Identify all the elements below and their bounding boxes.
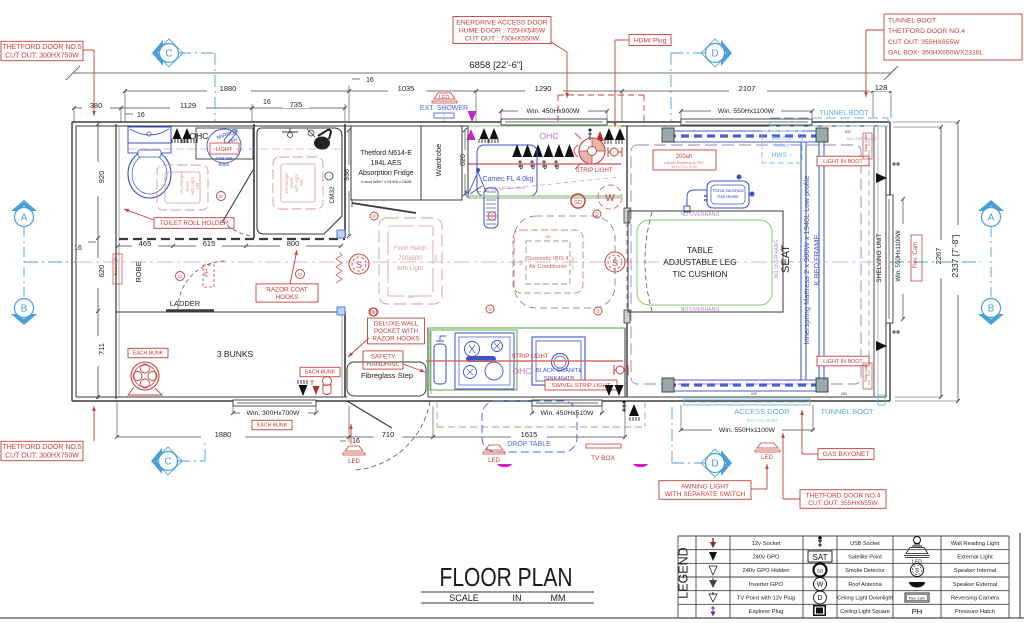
svg-text:THETFORD DOOR NO.5: THETFORD DOOR NO.5: [2, 44, 81, 51]
svg-text:CUT OUT: 300HX750W: CUT OUT: 300HX750W: [5, 53, 79, 60]
svg-text:Strip Light: Strip Light: [863, 363, 868, 382]
svg-text:655: 655: [751, 392, 757, 396]
svg-text:Explorer Plug: Explorer Plug: [749, 609, 784, 615]
svg-text:D: D: [372, 214, 375, 219]
svg-text:HWS ~: HWS ~: [772, 152, 793, 159]
svg-text:Win. 300Hx700W: Win. 300Hx700W: [247, 410, 300, 417]
svg-text:DROP TABLE: DROP TABLE: [507, 441, 551, 448]
svg-text:Wardrobe: Wardrobe: [434, 144, 443, 177]
svg-text:Rev. Cam: Rev. Cam: [913, 242, 919, 268]
svg-text:CUT OUT: 355HX655W: CUT OUT: 355HX655W: [808, 500, 878, 507]
svg-text:LIGHT: LIGHT: [216, 147, 233, 153]
svg-text:Rev. Cam: Rev. Cam: [909, 597, 925, 601]
svg-text:3 BUNKS: 3 BUNKS: [217, 349, 254, 359]
svg-text:Reversing Camera: Reversing Camera: [951, 596, 1000, 602]
svg-text:349: 349: [434, 255, 438, 261]
svg-text:CUT OUT : 730HX550W: CUT OUT : 730HX550W: [465, 35, 540, 42]
svg-text:Absorption Fridge: Absorption Fridge: [358, 170, 413, 177]
svg-text:W: W: [605, 193, 615, 204]
svg-text:Ceiling Light Downlight: Ceiling Light Downlight: [837, 596, 893, 602]
svg-text:Gas Heater: Gas Heater: [717, 194, 739, 199]
svg-text:LIGHT IN BOOT: LIGHT IN BOOT: [823, 159, 863, 165]
svg-text:AWNING LIGHT: AWNING LIGHT: [681, 483, 729, 490]
svg-text:Wall Reading Light: Wall Reading Light: [951, 541, 1000, 547]
svg-text:GAS BAYONET: GAS BAYONET: [823, 451, 870, 458]
svg-text:D: D: [178, 274, 182, 280]
svg-text:THETFORD DOOR NO.4: THETFORD DOOR NO.4: [806, 492, 881, 499]
svg-text:D: D: [488, 307, 491, 312]
svg-text:NCE 329: NCE 329: [216, 156, 234, 161]
svg-text:CM32: CM32: [329, 186, 336, 204]
svg-text:D: D: [219, 194, 223, 200]
svg-text:Enerflow: Enerflow: [772, 136, 792, 142]
svg-text:NO OVERHANG: NO OVERHANG: [847, 136, 877, 141]
svg-text:S: S: [612, 258, 618, 268]
svg-text:Win. 450Hx900W: Win. 450Hx900W: [527, 108, 580, 115]
svg-text:Innerspring Mattress 2 x 980W: Innerspring Mattress 2 x 980W x 1940L Lo…: [802, 176, 811, 345]
svg-text:S: S: [915, 569, 919, 575]
svg-text:200ah: 200ah: [676, 154, 693, 160]
svg-text:LADDER: LADDER: [170, 299, 201, 308]
svg-text:360: 360: [545, 235, 551, 239]
svg-text:184L AES: 184L AES: [371, 160, 402, 167]
svg-text:Win. 550Hx1100W: Win. 550Hx1100W: [718, 108, 775, 115]
svg-text:A: A: [988, 213, 995, 224]
svg-text:SAT: SAT: [813, 553, 828, 562]
svg-text:OHC: OHC: [513, 366, 532, 376]
svg-text:W: W: [817, 582, 824, 589]
svg-text:NO OVERHANG: NO OVERHANG: [681, 307, 720, 313]
svg-text:W600 x H700 x D420: W600 x H700 x D420: [487, 185, 526, 190]
svg-text:RAZOR HOOKS: RAZOR HOOKS: [372, 336, 419, 343]
svg-text:D: D: [596, 309, 599, 314]
svg-text:TABLE: TABLE: [687, 245, 714, 255]
svg-text:External Light: External Light: [957, 555, 993, 561]
svg-text:Speaker Internal: Speaker Internal: [954, 568, 997, 574]
svg-text:1290: 1290: [535, 84, 552, 93]
svg-text:Thetford N614-E: Thetford N614-E: [360, 150, 412, 157]
svg-text:465: 465: [139, 239, 152, 248]
svg-text:Speaker External: Speaker External: [953, 582, 997, 588]
svg-text:SD: SD: [817, 569, 824, 574]
svg-text:16: 16: [366, 77, 374, 84]
svg-text:CUT OUT: 355HX655W: CUT OUT: 355HX655W: [888, 39, 960, 46]
svg-text:TUNNEL BOOT: TUNNEL BOOT: [888, 18, 936, 25]
svg-text:240v GPO: 240v GPO: [752, 555, 780, 561]
svg-text:735: 735: [290, 100, 303, 109]
svg-text:Instant: Instant: [774, 143, 790, 149]
svg-text:D: D: [817, 595, 822, 602]
svg-text:SEAT: SEAT: [780, 245, 792, 273]
svg-text:329: 329: [195, 182, 200, 190]
svg-text:SD: SD: [574, 200, 582, 206]
svg-text:TUNNEL BOOT: TUNNEL BOOT: [820, 407, 873, 416]
svg-text:128: 128: [875, 83, 888, 92]
svg-text:S: S: [356, 260, 362, 270]
svg-text:800: 800: [287, 239, 300, 248]
svg-text:SHELVING UNIT: SHELVING UNIT: [876, 233, 883, 282]
svg-text:STRIP LIGHT: STRIP LIGHT: [576, 168, 613, 174]
svg-text:HDMI Plug: HDMI Plug: [634, 37, 667, 44]
svg-text:1035: 1035: [398, 84, 415, 93]
svg-text:Cutout W607 x H1415 x D628: Cutout W607 x H1415 x D628: [361, 180, 411, 184]
svg-text:D: D: [298, 272, 302, 278]
svg-text:920: 920: [97, 171, 106, 184]
svg-text:TUNNEL BOOT: TUNNEL BOOT: [819, 110, 869, 117]
svg-text:240v GPO Hidden: 240v GPO Hidden: [742, 568, 789, 574]
svg-text:710: 710: [382, 430, 395, 439]
svg-text:ROBE: ROBE: [134, 261, 143, 282]
svg-text:16: 16: [137, 112, 145, 119]
svg-text:K BED FRAME: K BED FRAME: [812, 235, 821, 286]
svg-text:329: 329: [299, 179, 304, 187]
svg-text:HANDRAIL: HANDRAIL: [367, 361, 400, 368]
svg-text:LIGHT IN BOOT: LIGHT IN BOOT: [823, 359, 863, 365]
svg-text:BLACK GRANITE: BLACK GRANITE: [536, 368, 583, 374]
svg-text:C: C: [164, 457, 171, 468]
svg-text:EACH BUNK: EACH BUNK: [305, 370, 336, 376]
svg-text:Fibreglass Step: Fibreglass Step: [361, 371, 413, 380]
svg-text:SCALE: SCALE: [449, 593, 479, 603]
svg-text:1880: 1880: [215, 430, 232, 439]
svg-text:16: 16: [74, 245, 82, 252]
svg-text:LED: LED: [488, 458, 500, 464]
svg-text:B: B: [21, 304, 28, 315]
svg-text:D: D: [371, 310, 374, 315]
svg-text:650: 650: [845, 130, 851, 134]
svg-text:D: D: [711, 49, 718, 60]
svg-text:FLOOR PLAN: FLOOR PLAN: [440, 562, 573, 592]
svg-text:16: 16: [352, 438, 360, 445]
svg-text:IN: IN: [513, 593, 522, 603]
svg-text:OHC: OHC: [190, 131, 209, 141]
svg-text:TIC CUSHION: TIC CUSHION: [672, 269, 727, 279]
svg-text:OHC: OHC: [540, 131, 559, 141]
svg-text:Win. 550Hx1100W: Win. 550Hx1100W: [719, 427, 776, 434]
svg-text:620: 620: [460, 154, 467, 166]
svg-text:C: C: [165, 49, 172, 60]
svg-text:1880: 1880: [220, 84, 237, 93]
svg-text:Pressure Hatch: Pressure Hatch: [955, 609, 995, 615]
svg-text:Domestic IBIS 4: Domestic IBIS 4: [527, 256, 569, 262]
svg-text:Win. 450Hx510W: Win. 450Hx510W: [541, 410, 594, 417]
svg-text:CUT OUT: 300HX750W: CUT OUT: 300HX750W: [5, 452, 79, 459]
svg-text:D: D: [711, 459, 718, 470]
svg-text:Smoke Detector: Smoke Detector: [845, 568, 885, 574]
svg-text:WITH SEPARATE SWITCH: WITH SEPARATE SWITCH: [665, 491, 746, 498]
svg-text:LED: LED: [439, 95, 450, 101]
svg-text:GAL BOX: 350HX650WX2316L: GAL BOX: 350HX650WX2316L: [888, 50, 984, 57]
svg-text:6858 [22’-6”]: 6858 [22’-6”]: [469, 60, 522, 71]
svg-text:2107: 2107: [739, 84, 756, 93]
svg-text:RAZOR COAT: RAZOR COAT: [266, 286, 308, 293]
svg-text:615: 615: [203, 239, 216, 248]
svg-text:HUME DOOR : 725HX545W: HUME DOOR : 725HX545W: [459, 27, 546, 34]
svg-text:Air Conditioner: Air Conditioner: [529, 264, 567, 270]
svg-text:380: 380: [90, 101, 103, 110]
svg-text:EACH BUNK: EACH BUNK: [257, 423, 288, 429]
svg-text:360: 360: [519, 260, 523, 266]
svg-text:SWIVEL STRIP LIGHT: SWIVEL STRIP LIGHT: [552, 383, 611, 389]
svg-text:12v Ranger: 12v Ranger: [179, 171, 184, 194]
svg-text:PH: PH: [204, 269, 210, 277]
svg-text:SAFETY: SAFETY: [371, 353, 397, 360]
svg-text:TV BOX: TV BOX: [591, 455, 616, 462]
svg-text:(NO GAL BOX): (NO GAL BOX): [747, 418, 778, 423]
svg-text:MM: MM: [551, 593, 566, 603]
svg-text:HOOKS: HOOKS: [275, 294, 298, 301]
svg-text:PH: PH: [912, 607, 922, 616]
svg-text:with Light: with Light: [396, 265, 423, 272]
svg-text:2337 [7’-8”]: 2337 [7’-8”]: [950, 235, 960, 278]
svg-text:700x500: 700x500: [398, 255, 422, 262]
svg-text:STRIP LIGHT: STRIP LIGHT: [512, 354, 549, 360]
svg-text:EACH BUNK: EACH BUNK: [133, 351, 164, 357]
svg-text:620: 620: [97, 265, 106, 278]
svg-text:LH 230: LH 230: [571, 257, 575, 269]
svg-text:ENERDRIVE ACCESS DOOR: ENERDRIVE ACCESS DOOR: [456, 19, 547, 26]
svg-text:Truma VarioHeat: Truma VarioHeat: [712, 188, 744, 193]
svg-text:16: 16: [263, 99, 271, 106]
svg-text:Roof Antenna: Roof Antenna: [848, 582, 882, 588]
svg-text:Inverter GPO: Inverter GPO: [749, 582, 784, 588]
svg-text:POCKET WITH: POCKET WITH: [374, 328, 419, 335]
svg-text:12v Socket: 12v Socket: [752, 541, 781, 547]
svg-text:LEGEND: LEGEND: [677, 547, 691, 598]
svg-text:590 x 770 x D790: 590 x 770 x D790: [672, 165, 697, 169]
svg-text:THETFORD DOOR NO.4: THETFORD DOOR NO.4: [888, 28, 965, 35]
svg-text:1129: 1129: [180, 101, 196, 110]
svg-text:DELUXE WALL: DELUXE WALL: [374, 321, 419, 328]
svg-text:LED: LED: [761, 455, 773, 461]
svg-text:549: 549: [408, 294, 415, 299]
svg-text:LED: LED: [348, 459, 360, 465]
svg-text:A: A: [21, 213, 28, 224]
svg-text:TOILET ROLL HOLDER: TOILET ROLL HOLDER: [160, 220, 229, 227]
svg-text:Finch Hatch: Finch Hatch: [393, 245, 427, 252]
svg-text:D: D: [490, 214, 493, 219]
svg-text:Win. 550Hx1100W: Win. 550Hx1100W: [895, 230, 902, 281]
svg-text:Ceiling Light Square: Ceiling Light Square: [840, 609, 890, 615]
svg-text:B: B: [988, 304, 995, 315]
svg-text:1615: 1615: [521, 430, 538, 439]
svg-text:Satellite Point: Satellite Point: [848, 555, 882, 561]
svg-text:THETFORD DOOR NO.5: THETFORD DOOR NO.5: [2, 444, 81, 451]
svg-text:NO OVERHANG: NO OVERHANG: [681, 212, 720, 218]
svg-text:711: 711: [97, 343, 106, 355]
svg-text:655: 655: [841, 392, 847, 396]
svg-text:ACCESS DOOR: ACCESS DOOR: [734, 407, 790, 416]
svg-text:Camec FL 4.0kg: Camec FL 4.0kg: [482, 176, 533, 183]
svg-text:ADJUSTABLE LEG: ADJUSTABLE LEG: [663, 257, 737, 267]
svg-text:TV Point with 12v Plug: TV Point with 12v Plug: [737, 596, 795, 602]
svg-text:USB Socket: USB Socket: [850, 541, 880, 547]
svg-text:Black: Black: [218, 162, 230, 167]
